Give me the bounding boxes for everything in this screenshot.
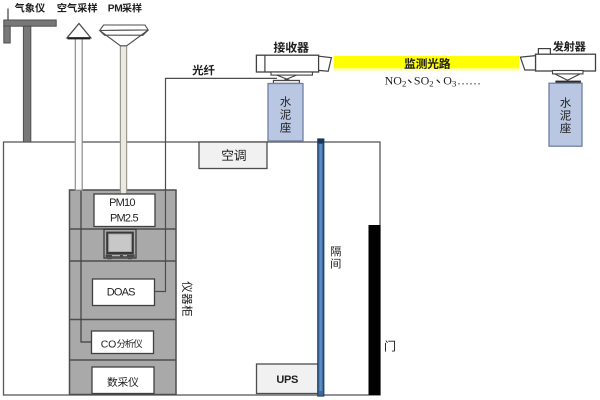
svg-text:UPS: UPS: [276, 374, 298, 386]
svg-text:PM2.5: PM2.5: [110, 212, 138, 224]
svg-text:……: ……: [457, 74, 481, 88]
svg-text:SO2: SO2: [414, 74, 434, 89]
svg-text:PM10: PM10: [109, 197, 135, 209]
svg-text:CO: CO: [101, 338, 116, 350]
svg-text:PM: PM: [108, 4, 122, 15]
svg-text:O3: O3: [443, 74, 457, 89]
svg-text:NO2: NO2: [385, 74, 407, 89]
svg-text:DOAS: DOAS: [107, 287, 135, 299]
